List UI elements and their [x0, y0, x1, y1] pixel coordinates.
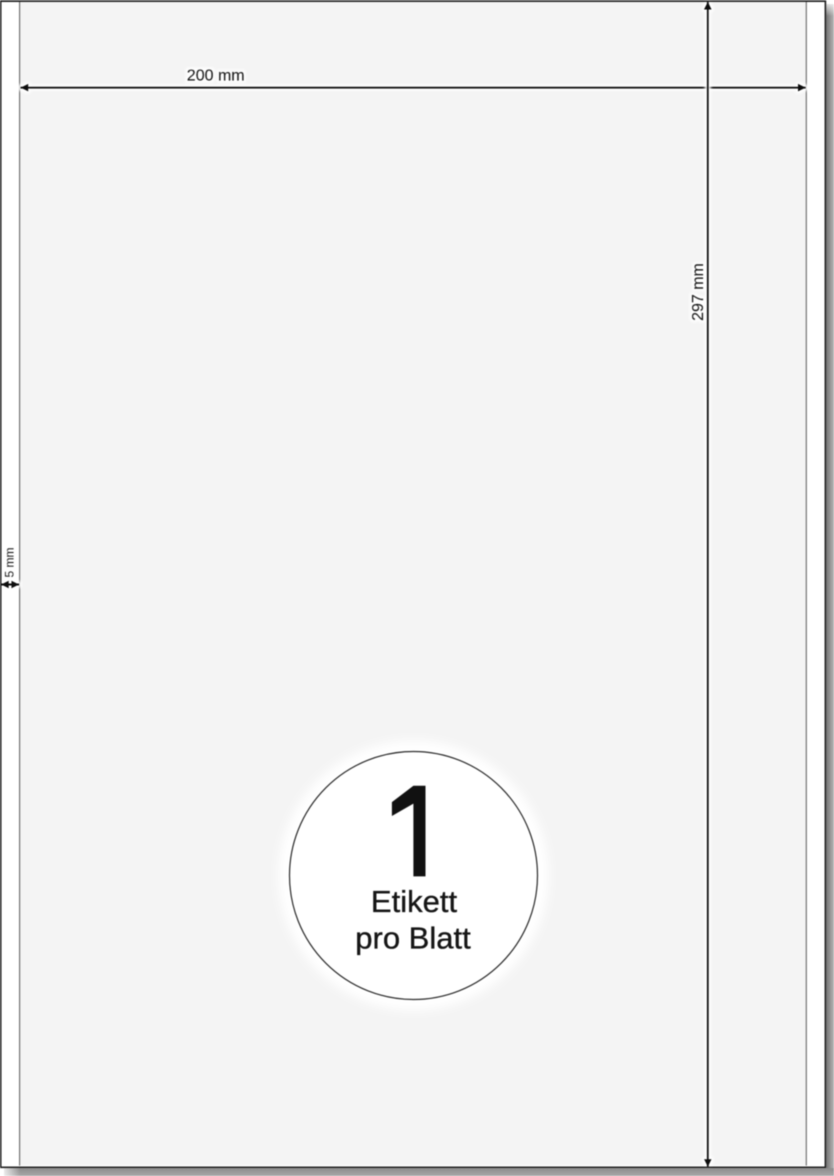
- svg-text:pro Blatt: pro Blatt: [355, 921, 471, 956]
- svg-text:200 mm: 200 mm: [187, 67, 245, 84]
- svg-text:Etikett: Etikett: [371, 884, 458, 919]
- svg-text:297 mm: 297 mm: [690, 263, 707, 321]
- svg-text:5 mm: 5 mm: [2, 547, 16, 577]
